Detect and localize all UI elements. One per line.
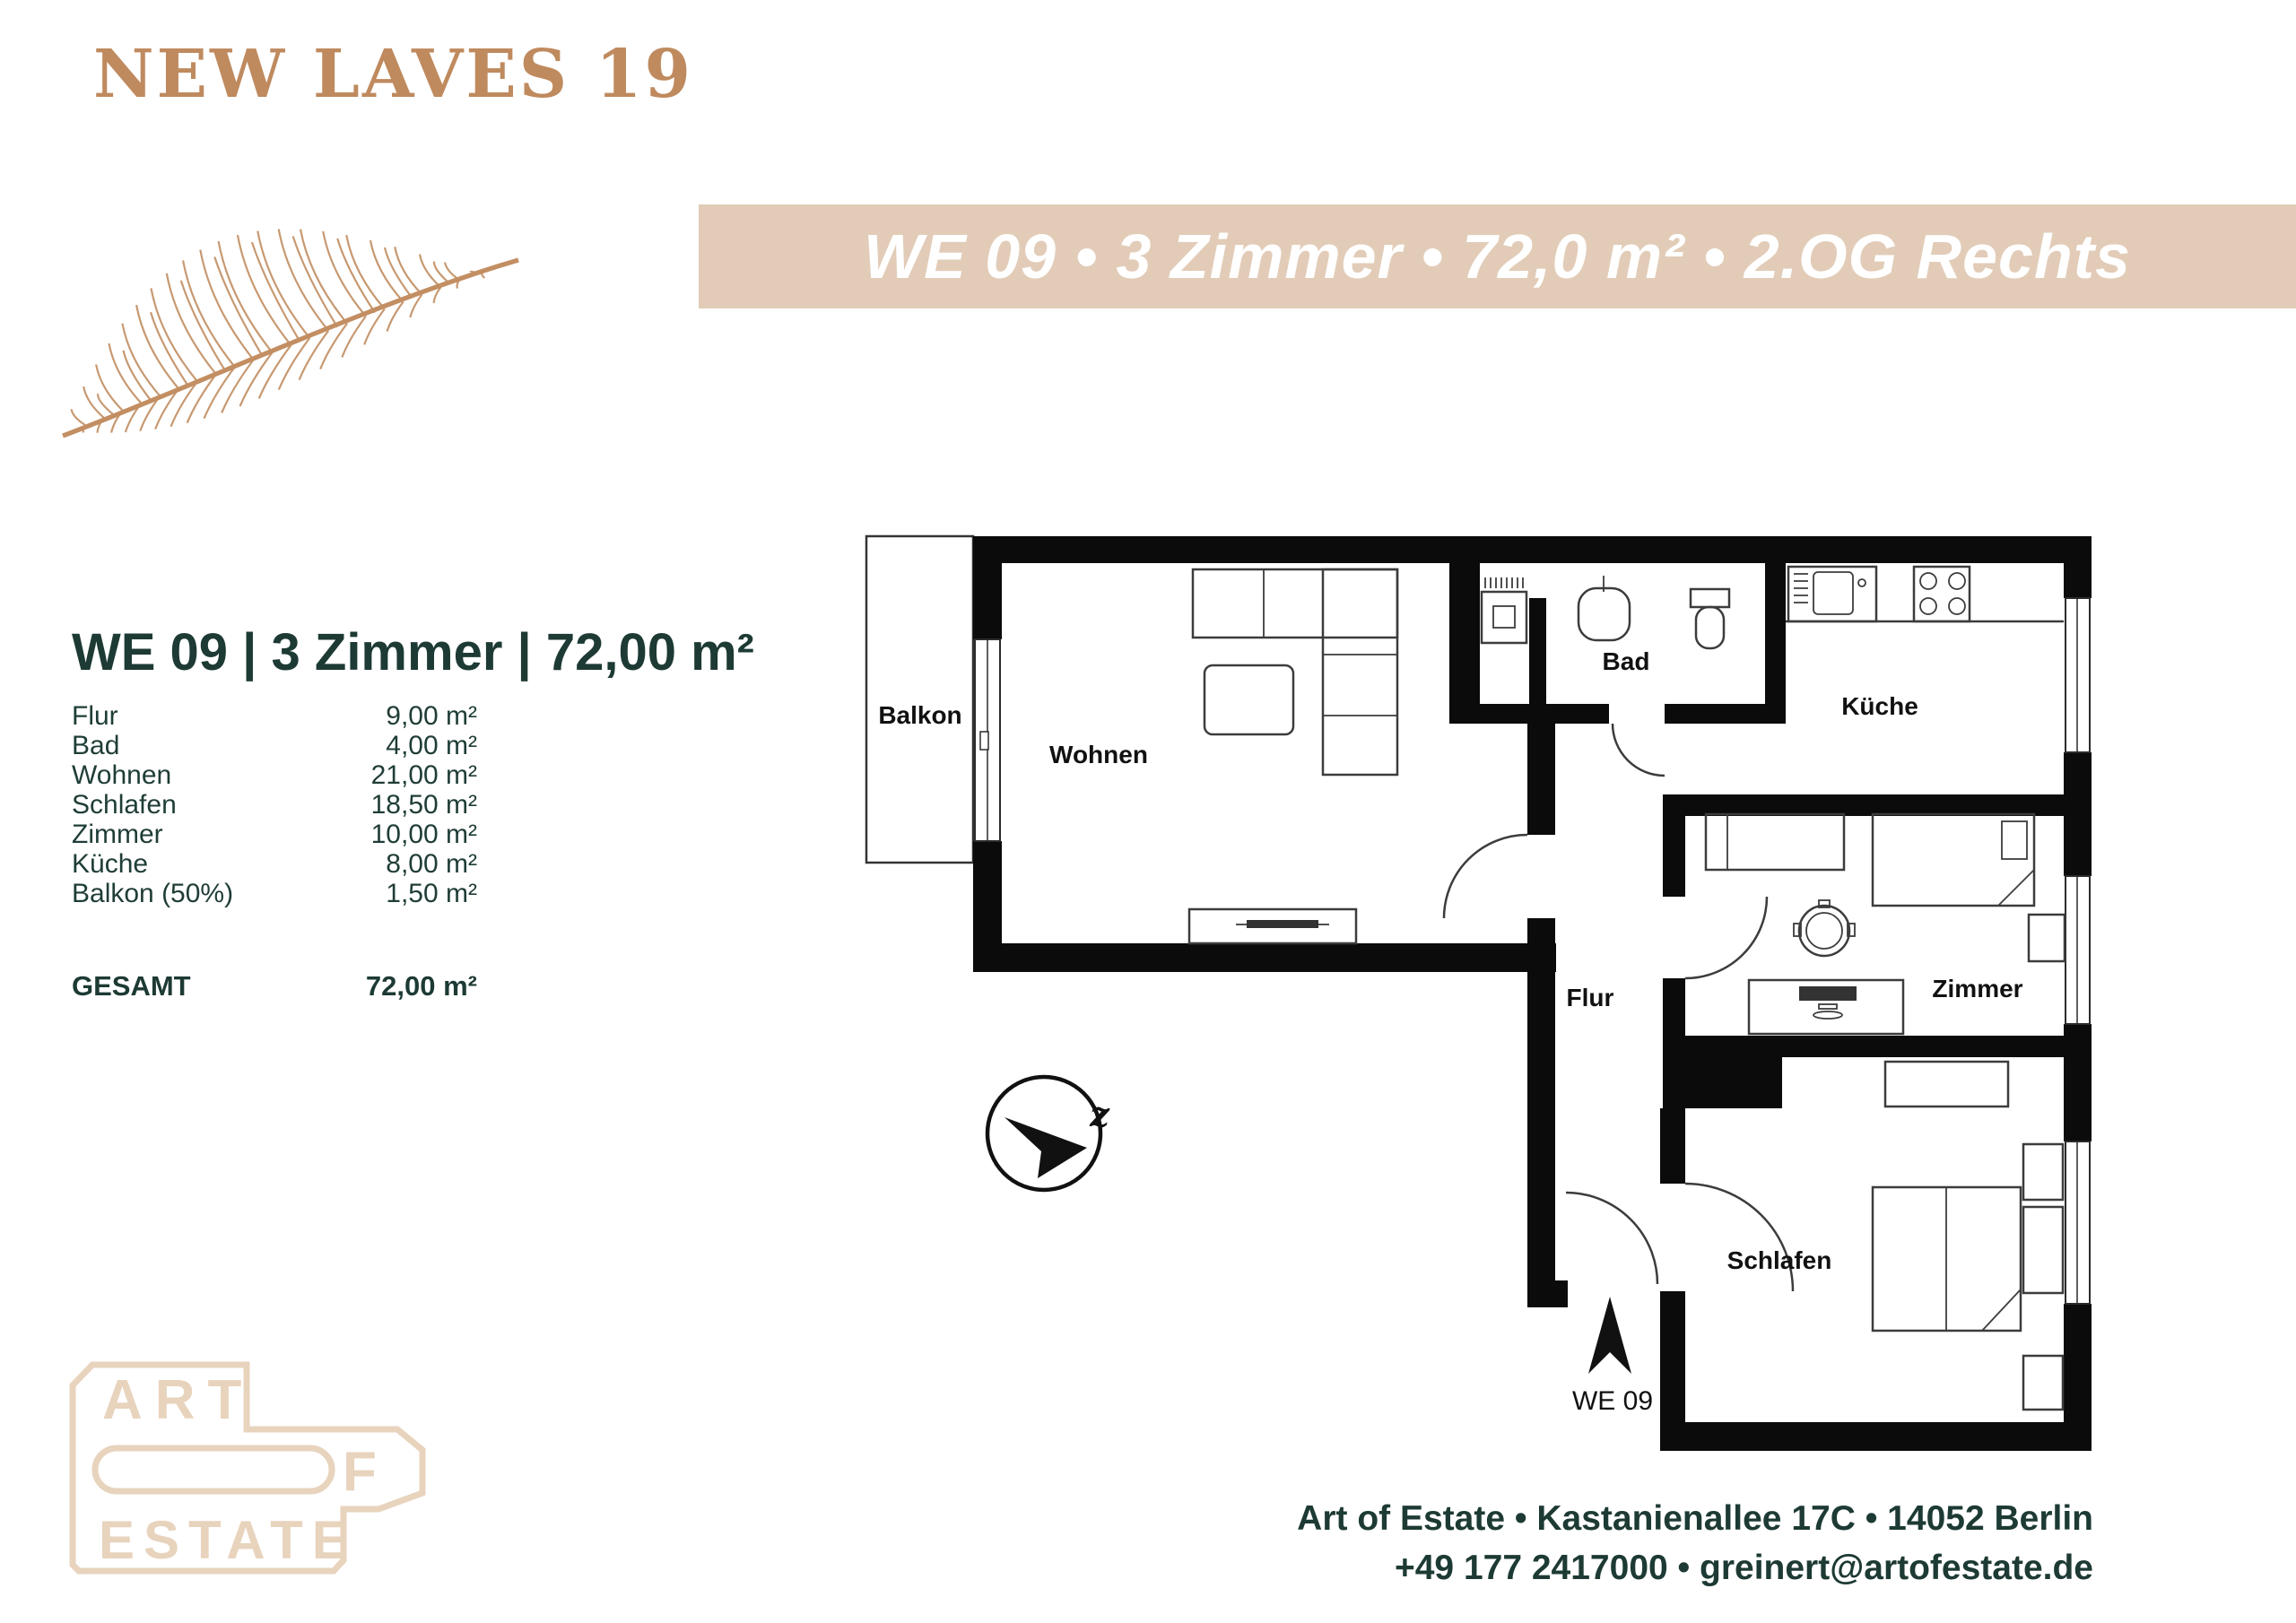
room-label-schlafen: Schlafen (1727, 1246, 1832, 1274)
entrance-marker: WE 09 (1572, 1297, 1653, 1416)
washing-machine-icon (1482, 577, 1526, 643)
area-row-label: Küche (72, 849, 148, 879)
entrance-unit-label: WE 09 (1572, 1386, 1653, 1416)
contact-phone-email-line: +49 177 2417000 • greinert@artofestate.d… (1297, 1543, 2093, 1593)
area-row-value: 9,00 m² (386, 701, 477, 731)
coffee-table (1205, 665, 1293, 734)
toilet-icon (1691, 589, 1729, 648)
leaf-illustration (52, 160, 522, 468)
area-table-row: Schlafen18,50 m² (72, 790, 477, 820)
kitchen-counter (1786, 567, 2064, 621)
room-label-bad: Bad (1603, 647, 1650, 675)
area-row-label: Bad (72, 731, 119, 760)
area-row-label: Balkon (50%) (72, 879, 233, 908)
area-row-label: Zimmer (72, 820, 163, 849)
area-row-label: Flur (72, 701, 118, 731)
area-table-row: Balkon (50%)1,50 m² (72, 879, 477, 908)
area-row-value: 1,50 m² (386, 879, 477, 908)
balcony (866, 536, 973, 863)
entrance-arrow-icon (1588, 1297, 1631, 1374)
unit-banner: WE 09 • 3 Zimmer • 72,0 m² • 2.OG Rechts (699, 204, 2296, 308)
tv-board (1189, 909, 1356, 943)
area-total-row: GESAMT 72,00 m² (72, 970, 477, 1002)
room-label-balkon: Balkon (878, 701, 961, 729)
walls (973, 536, 2092, 1451)
room-label-wohnen: Wohnen (1049, 741, 1148, 768)
unit-title: WE 09 | 3 Zimmer | 72,00 m² (72, 622, 754, 682)
contact-address-line: Art of Estate • Kastanienallee 17C • 140… (1297, 1494, 2093, 1543)
brand-logotype: NEW LAVES 19 (93, 36, 693, 113)
art-of-estate-logo: ART F ESTATE (54, 1354, 430, 1596)
monitor-icon (1799, 986, 1857, 1001)
contact-footer: Art of Estate • Kastanienallee 17C • 140… (1297, 1494, 2093, 1593)
leaf-stem (63, 260, 518, 436)
area-table-row: Wohnen21,00 m² (72, 760, 477, 790)
brochure-page: { "brand": { "name": "NEW LAVES 19" }, "… (0, 0, 2296, 1623)
area-row-label: Schlafen (72, 790, 177, 820)
svg-text:z: z (1089, 1094, 1110, 1134)
area-total-label: GESAMT (72, 970, 191, 1002)
area-table-row: Flur9,00 m² (72, 701, 477, 731)
area-table-row: Bad4,00 m² (72, 731, 477, 760)
room-label-kueche: Küche (1841, 692, 1918, 720)
logo-art-text: ART (102, 1369, 254, 1431)
washbasin-icon (1578, 576, 1630, 640)
area-row-value: 8,00 m² (386, 849, 477, 879)
compass-icon: z (987, 1077, 1110, 1190)
floor-plan: z WE 09 Balkon Wohnen Bad Küche Flur Zim… (861, 520, 2135, 1456)
room-label-flur: Flur (1567, 984, 1614, 1011)
sofa (1193, 569, 1397, 775)
area-row-value: 4,00 m² (386, 731, 477, 760)
area-table-row: Küche8,00 m² (72, 849, 477, 879)
logo-estate-text: ESTATE (99, 1510, 357, 1570)
area-row-label: Wohnen (72, 760, 171, 790)
area-total-value: 72,00 m² (366, 970, 477, 1002)
area-row-value: 21,00 m² (371, 760, 477, 790)
logo-f-text: F (343, 1441, 377, 1503)
area-row-value: 18,50 m² (371, 790, 477, 820)
schlafen-furniture (1873, 1062, 2063, 1410)
area-table-row: Zimmer10,00 m² (72, 820, 477, 849)
room-label-zimmer: Zimmer (1932, 975, 2022, 1002)
area-row-value: 10,00 m² (371, 820, 477, 849)
unit-banner-text: WE 09 • 3 Zimmer • 72,0 m² • 2.OG Rechts (864, 221, 2131, 292)
logo-o-pill (95, 1448, 332, 1491)
area-table: Flur9,00 m²Bad4,00 m²Wohnen21,00 m²Schla… (72, 701, 477, 908)
